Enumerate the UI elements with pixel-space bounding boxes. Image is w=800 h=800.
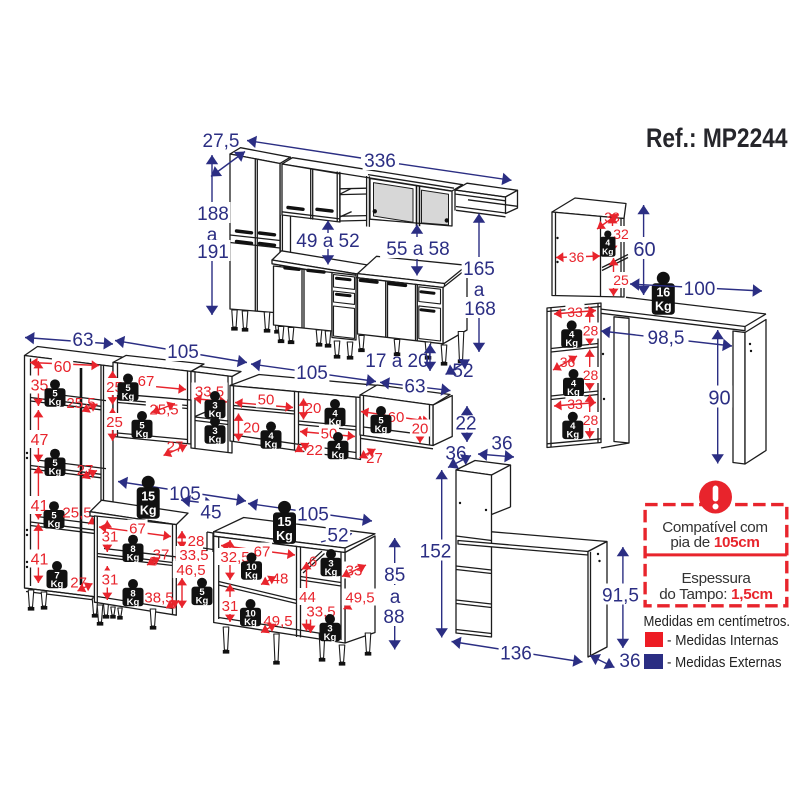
- svg-text:Espessura: Espessura: [681, 570, 751, 587]
- svg-text:28: 28: [583, 323, 599, 339]
- svg-text:Kg: Kg: [209, 434, 222, 445]
- svg-text:Kg: Kg: [49, 397, 62, 408]
- svg-text:188: 188: [197, 204, 229, 225]
- svg-text:41: 41: [31, 552, 49, 569]
- svg-text:336: 336: [364, 151, 396, 172]
- svg-text:Kg: Kg: [332, 450, 345, 461]
- svg-text:63: 63: [72, 330, 93, 351]
- svg-text:Kg: Kg: [136, 429, 149, 440]
- svg-text:49,5: 49,5: [345, 590, 374, 607]
- svg-text:17 a 20: 17 a 20: [365, 351, 428, 372]
- svg-text:25,5: 25,5: [62, 505, 91, 522]
- svg-text:Kg: Kg: [655, 300, 672, 314]
- svg-text:85: 85: [384, 565, 405, 586]
- svg-text:Kg: Kg: [49, 467, 62, 478]
- svg-text:Kg: Kg: [140, 504, 157, 518]
- svg-text:55 a 58: 55 a 58: [386, 239, 449, 260]
- svg-text:47: 47: [31, 432, 49, 449]
- svg-text:Kg: Kg: [196, 596, 209, 607]
- svg-text:15: 15: [141, 490, 155, 504]
- svg-text:20: 20: [412, 421, 429, 438]
- svg-text:a: a: [390, 587, 401, 608]
- svg-text:- Medidas Internas: - Medidas Internas: [667, 632, 779, 649]
- svg-text:Kg: Kg: [265, 439, 278, 450]
- svg-text:Kg: Kg: [602, 247, 613, 257]
- svg-text:Kg: Kg: [245, 570, 258, 581]
- svg-text:152: 152: [420, 542, 452, 563]
- svg-text:Kg: Kg: [127, 553, 140, 564]
- svg-text:Ref.: MP2244: Ref.: MP2244: [646, 123, 788, 153]
- svg-text:60: 60: [633, 239, 655, 261]
- svg-text:49,5: 49,5: [263, 613, 292, 630]
- svg-text:88: 88: [383, 607, 404, 628]
- svg-text:Kg: Kg: [127, 597, 140, 608]
- svg-text:67: 67: [138, 373, 155, 390]
- svg-text:60: 60: [54, 359, 72, 376]
- svg-text:Kg: Kg: [375, 424, 388, 435]
- svg-text:36: 36: [569, 249, 585, 265]
- svg-text:pia de 105cm: pia de 105cm: [670, 534, 759, 551]
- svg-text:do Tampo: 1,5cm: do Tampo: 1,5cm: [659, 586, 772, 603]
- svg-text:46,5: 46,5: [176, 562, 205, 579]
- svg-text:27,5: 27,5: [203, 131, 240, 152]
- svg-text:Kg: Kg: [324, 632, 337, 643]
- svg-text:91,5: 91,5: [602, 586, 639, 607]
- svg-text:165: 165: [463, 259, 495, 280]
- svg-text:Kg: Kg: [276, 529, 293, 543]
- svg-text:20: 20: [243, 420, 260, 437]
- svg-text:98,5: 98,5: [648, 328, 685, 349]
- svg-text:31: 31: [222, 598, 239, 615]
- svg-text:63: 63: [404, 377, 425, 398]
- svg-text:Kg: Kg: [244, 617, 257, 628]
- svg-text:Kg: Kg: [325, 567, 338, 578]
- svg-text:Kg: Kg: [48, 519, 61, 530]
- svg-text:136: 136: [500, 644, 532, 665]
- svg-text:28: 28: [583, 412, 599, 428]
- svg-text:25: 25: [613, 272, 629, 288]
- svg-text:36: 36: [491, 434, 512, 455]
- svg-text:Kg: Kg: [122, 391, 135, 402]
- svg-text:52: 52: [327, 526, 348, 547]
- svg-text:Medidas em centímetros.: Medidas em centímetros.: [644, 613, 791, 630]
- svg-text:22: 22: [306, 442, 323, 459]
- svg-text:20: 20: [305, 400, 322, 417]
- svg-text:Kg: Kg: [565, 338, 578, 349]
- svg-text:191: 191: [197, 242, 229, 263]
- svg-text:- Medidas Externas: - Medidas Externas: [667, 654, 782, 671]
- svg-text:28: 28: [583, 367, 599, 383]
- svg-text:105: 105: [296, 363, 328, 384]
- svg-text:36: 36: [619, 651, 640, 672]
- svg-text:22: 22: [455, 414, 476, 435]
- svg-text:31: 31: [102, 572, 119, 589]
- svg-text:16: 16: [656, 286, 670, 300]
- svg-text:100: 100: [684, 279, 716, 300]
- svg-text:105: 105: [297, 505, 329, 526]
- svg-text:50: 50: [258, 392, 275, 409]
- svg-text:105: 105: [167, 342, 199, 363]
- svg-text:49 a 52: 49 a 52: [296, 231, 359, 252]
- svg-text:Kg: Kg: [51, 579, 64, 590]
- svg-text:168: 168: [464, 299, 496, 320]
- svg-text:25: 25: [106, 414, 123, 431]
- svg-text:32: 32: [613, 226, 629, 242]
- svg-text:45: 45: [200, 503, 221, 524]
- svg-text:15: 15: [278, 515, 292, 529]
- svg-text:52: 52: [452, 361, 473, 382]
- svg-text:36: 36: [445, 444, 466, 465]
- svg-text:90: 90: [708, 388, 730, 410]
- svg-text:Kg: Kg: [566, 430, 579, 441]
